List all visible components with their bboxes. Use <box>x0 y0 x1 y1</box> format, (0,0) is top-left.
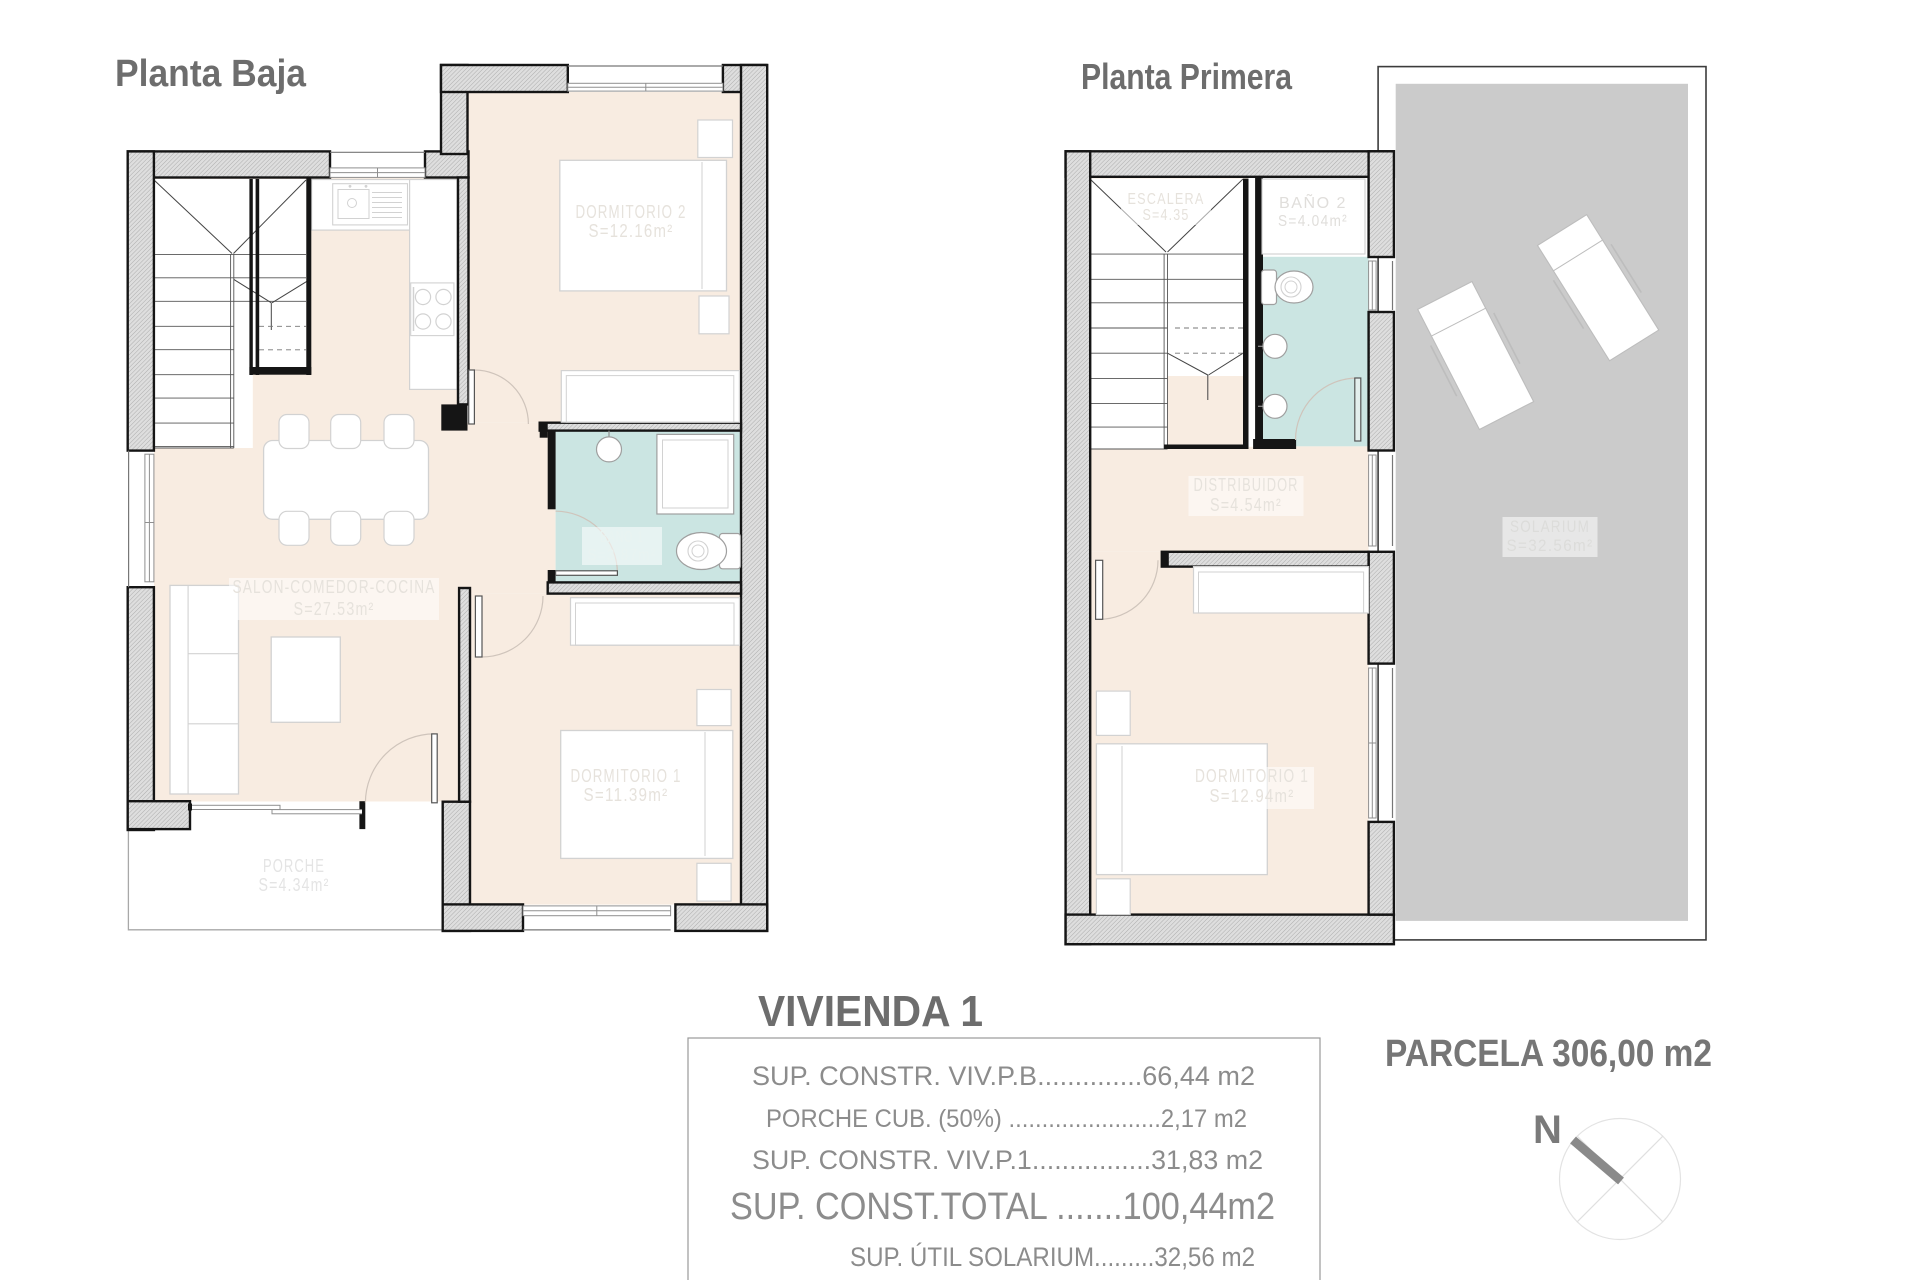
svg-text:S=4.34m²: S=4.34m² <box>259 875 330 895</box>
svg-text:DORMITORIO 1: DORMITORIO 1 <box>1195 766 1309 786</box>
svg-text:DORMITORIO 2: DORMITORIO 2 <box>576 202 687 222</box>
svg-text:PORCHE: PORCHE <box>263 856 325 876</box>
svg-text:DORMITORIO 1: DORMITORIO 1 <box>571 766 682 786</box>
svg-text:S=4.54m²: S=4.54m² <box>1210 495 1282 515</box>
svg-text:ESCALERA: ESCALERA <box>1128 191 1205 208</box>
svg-text:S=11.39m²: S=11.39m² <box>584 785 669 805</box>
svg-text:PORCHE CUB. (50%) ............: PORCHE CUB. (50%) ......................… <box>766 1105 1247 1133</box>
svg-text:S=32.56m²: S=32.56m² <box>1507 536 1594 555</box>
svg-text:S=12.94m²: S=12.94m² <box>1210 786 1295 806</box>
svg-text:SALON-COMEDOR-COCINA: SALON-COMEDOR-COCINA <box>233 577 436 597</box>
svg-text:DISTRIBUIDOR: DISTRIBUIDOR <box>1194 475 1299 495</box>
svg-text:S=12.16m²: S=12.16m² <box>589 221 674 241</box>
svg-text:PARCELA 306,00 m2: PARCELA 306,00 m2 <box>1385 1033 1712 1075</box>
svg-text:Planta Primera: Planta Primera <box>1081 56 1293 97</box>
svg-text:Planta Baja: Planta Baja <box>115 53 307 95</box>
svg-text:S=4.04m²: S=4.04m² <box>1278 213 1348 230</box>
svg-text:SOLARIUM: SOLARIUM <box>1510 517 1590 536</box>
svg-text:BAÑO 1: BAÑO 1 <box>600 526 644 546</box>
svg-text:SUP. CONSTR. VIV.P.1..........: SUP. CONSTR. VIV.P.1................31,8… <box>752 1145 1263 1175</box>
svg-text:S=3.87m²: S=3.87m² <box>588 547 657 564</box>
svg-text:VIVIENDA 1: VIVIENDA 1 <box>758 987 983 1036</box>
svg-text:N: N <box>1533 1108 1562 1152</box>
svg-text:SUP. CONST.TOTAL .......100,44: SUP. CONST.TOTAL .......100,44m2 <box>730 1186 1275 1228</box>
svg-text:SUP. CONSTR. VIV.P.B..........: SUP. CONSTR. VIV.P.B..............66,44 … <box>752 1061 1255 1091</box>
svg-text:BAÑO 2: BAÑO 2 <box>1279 192 1347 212</box>
svg-text:S=4.35: S=4.35 <box>1143 207 1190 224</box>
svg-text:S=27.53m²: S=27.53m² <box>294 599 375 619</box>
svg-text:SUP. ÚTIL SOLARIUM.........32,: SUP. ÚTIL SOLARIUM.........32,56 m2 <box>850 1241 1255 1272</box>
